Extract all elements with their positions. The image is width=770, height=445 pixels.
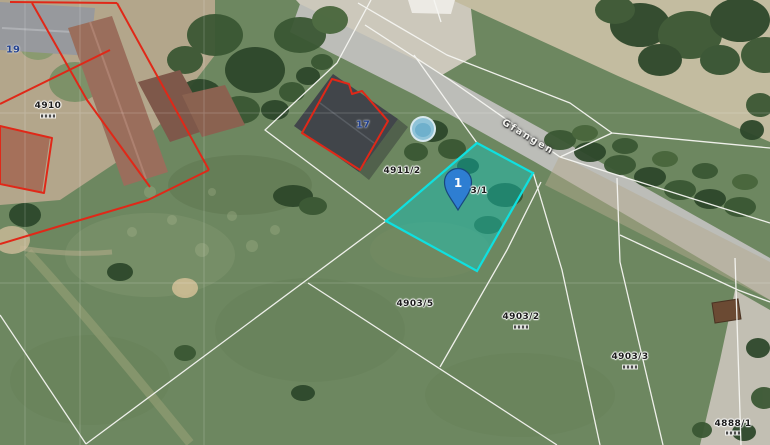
parcel-label-4888-1: 4888/1	[715, 419, 752, 429]
parcel-label-4903-3: 4903/3	[612, 352, 649, 362]
parcel-label-4910: 4910	[35, 101, 62, 111]
parcel-label-4903-5: 4903/5	[397, 299, 434, 309]
parcel-label-4911-2: 4911/2	[384, 166, 421, 176]
parcel-area-text-4903-3	[623, 366, 637, 369]
marker-number: 1	[454, 176, 462, 190]
parcel-label-4903-2: 4903/2	[503, 312, 540, 322]
house-number-17: 17	[356, 120, 370, 131]
parcel-area-text-4888-1	[726, 432, 740, 435]
parcel-label-selected: 3/1	[470, 186, 487, 196]
parcel-area-text-4910	[41, 115, 55, 118]
pool	[410, 116, 436, 142]
cadastral-map[interactable]: 1 19 4910 17 4911/2 3/1 Gfangen 4903/5 4…	[0, 0, 770, 445]
parcel-area-text-4903-2	[514, 326, 528, 329]
house-number-19: 19	[6, 45, 20, 56]
aerial-imagery-layer: 1	[0, 0, 770, 445]
